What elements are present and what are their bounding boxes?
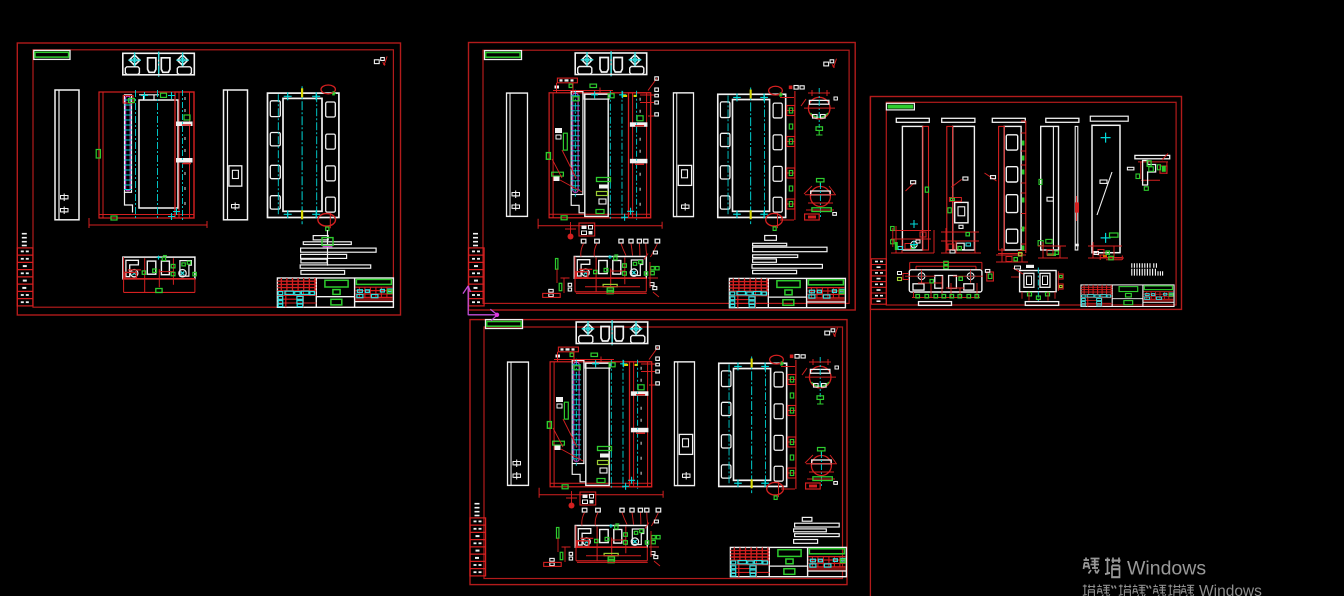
svg-text:Windows: Windows: [1127, 558, 1206, 580]
svg-text:Windows: Windows: [1199, 583, 1262, 596]
